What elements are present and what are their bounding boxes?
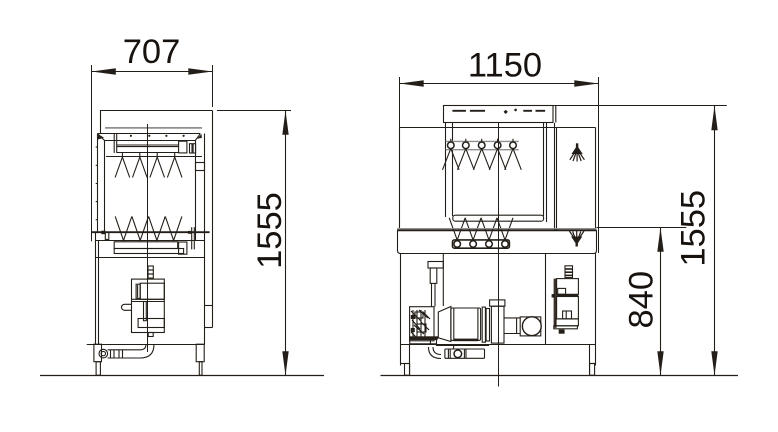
svg-text:1150: 1150: [468, 47, 542, 85]
svg-text:1555: 1555: [251, 192, 289, 269]
svg-text:840: 840: [622, 271, 660, 329]
svg-text:1555: 1555: [674, 190, 712, 267]
svg-text:707: 707: [123, 33, 181, 71]
